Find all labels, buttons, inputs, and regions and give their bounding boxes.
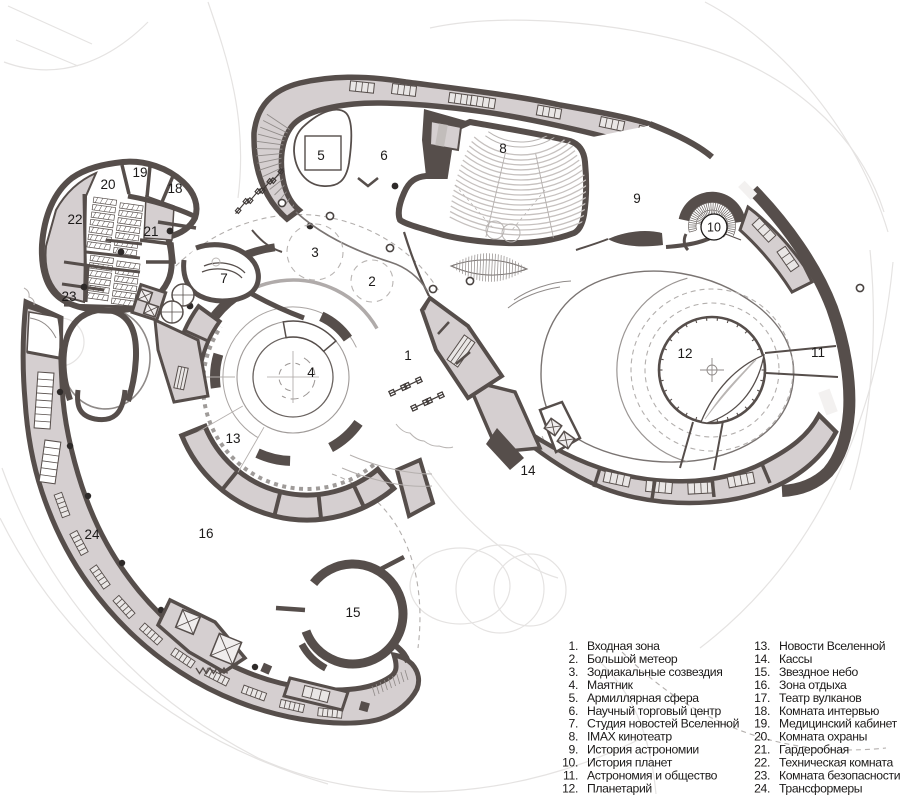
svg-text:Техническая комната: Техническая комната	[779, 756, 893, 770]
svg-text:23.: 23.	[754, 769, 770, 783]
svg-text:9: 9	[633, 191, 641, 206]
svg-text:3: 3	[311, 245, 319, 260]
svg-text:11: 11	[811, 345, 825, 360]
svg-text:14: 14	[520, 463, 536, 478]
svg-text:Армиллярная сфера: Армиллярная сфера	[587, 691, 699, 705]
svg-text:Медицинский кабинет: Медицинский кабинет	[779, 717, 898, 731]
svg-text:3.: 3.	[569, 665, 578, 679]
svg-text:10.: 10.	[562, 756, 578, 770]
svg-text:15: 15	[345, 605, 360, 620]
svg-text:Входная зона: Входная зона	[587, 639, 660, 653]
svg-text:Трансформеры: Трансформеры	[779, 782, 862, 796]
svg-text:6.: 6.	[569, 704, 578, 718]
svg-text:1.: 1.	[569, 639, 578, 653]
svg-text:20: 20	[100, 177, 115, 192]
svg-text:Студия новостей Вселенной: Студия новостей Вселенной	[587, 717, 739, 731]
svg-text:7.: 7.	[569, 717, 578, 731]
svg-text:5.: 5.	[569, 691, 578, 705]
svg-text:Маятник: Маятник	[587, 678, 634, 692]
svg-text:Комната безопасности: Комната безопасности	[779, 769, 900, 783]
svg-text:10: 10	[707, 221, 721, 235]
svg-text:9.: 9.	[569, 743, 578, 757]
svg-text:19: 19	[132, 165, 147, 180]
svg-text:24: 24	[84, 527, 100, 542]
svg-text:IMAX кинотеатр: IMAX кинотеатр	[587, 730, 672, 744]
svg-text:21: 21	[143, 224, 158, 239]
svg-text:22: 22	[67, 212, 82, 227]
svg-text:18: 18	[167, 181, 182, 196]
svg-text:17.: 17.	[754, 691, 770, 705]
svg-text:2: 2	[368, 274, 376, 289]
svg-text:16: 16	[198, 526, 213, 541]
svg-text:2.: 2.	[569, 652, 578, 666]
svg-text:Гардеробная: Гардеробная	[779, 743, 849, 757]
svg-text:1: 1	[404, 348, 412, 363]
svg-text:13.: 13.	[754, 639, 770, 653]
svg-text:8: 8	[499, 141, 507, 156]
svg-text:15.: 15.	[754, 665, 770, 679]
svg-text:7: 7	[220, 271, 228, 286]
svg-text:4.: 4.	[569, 678, 578, 692]
svg-text:Зона отдыха: Зона отдыха	[779, 678, 847, 692]
svg-text:21.: 21.	[754, 743, 770, 757]
svg-text:4: 4	[307, 365, 315, 380]
svg-text:16.: 16.	[754, 678, 770, 692]
svg-text:Театр вулканов: Театр вулканов	[779, 691, 861, 705]
svg-text:Научный торговый центр: Научный торговый центр	[587, 704, 722, 718]
svg-text:Кассы: Кассы	[779, 652, 812, 666]
svg-text:Большой метеор: Большой метеор	[587, 652, 678, 666]
svg-text:Зодиакальные созвездия: Зодиакальные созвездия	[587, 665, 723, 679]
svg-text:14.: 14.	[754, 652, 770, 666]
svg-text:23: 23	[61, 289, 76, 304]
svg-text:11.: 11.	[563, 769, 578, 783]
svg-text:Комната охраны: Комната охраны	[779, 730, 867, 744]
svg-text:6: 6	[380, 148, 388, 163]
svg-text:13: 13	[225, 431, 240, 446]
svg-text:8.: 8.	[569, 730, 578, 744]
svg-text:Комната интервью: Комната интервью	[779, 704, 879, 718]
svg-text:22.: 22.	[754, 756, 770, 770]
svg-text:Новости Вселенной: Новости Вселенной	[779, 639, 885, 653]
svg-text:История планет: История планет	[587, 756, 673, 770]
svg-text:12: 12	[677, 346, 692, 361]
svg-text:Астрономия и общество: Астрономия и общество	[587, 769, 718, 783]
svg-text:Планетарий: Планетарий	[587, 782, 652, 796]
svg-text:24.: 24.	[754, 782, 770, 796]
svg-text:19.: 19.	[754, 717, 770, 731]
svg-text:12.: 12.	[562, 782, 578, 796]
svg-text:20.: 20.	[754, 730, 770, 744]
svg-text:Звездное небо: Звездное небо	[779, 665, 858, 679]
svg-text:История астрономии: История астрономии	[587, 743, 699, 757]
svg-text:18.: 18.	[754, 704, 770, 718]
svg-text:5: 5	[317, 148, 325, 163]
